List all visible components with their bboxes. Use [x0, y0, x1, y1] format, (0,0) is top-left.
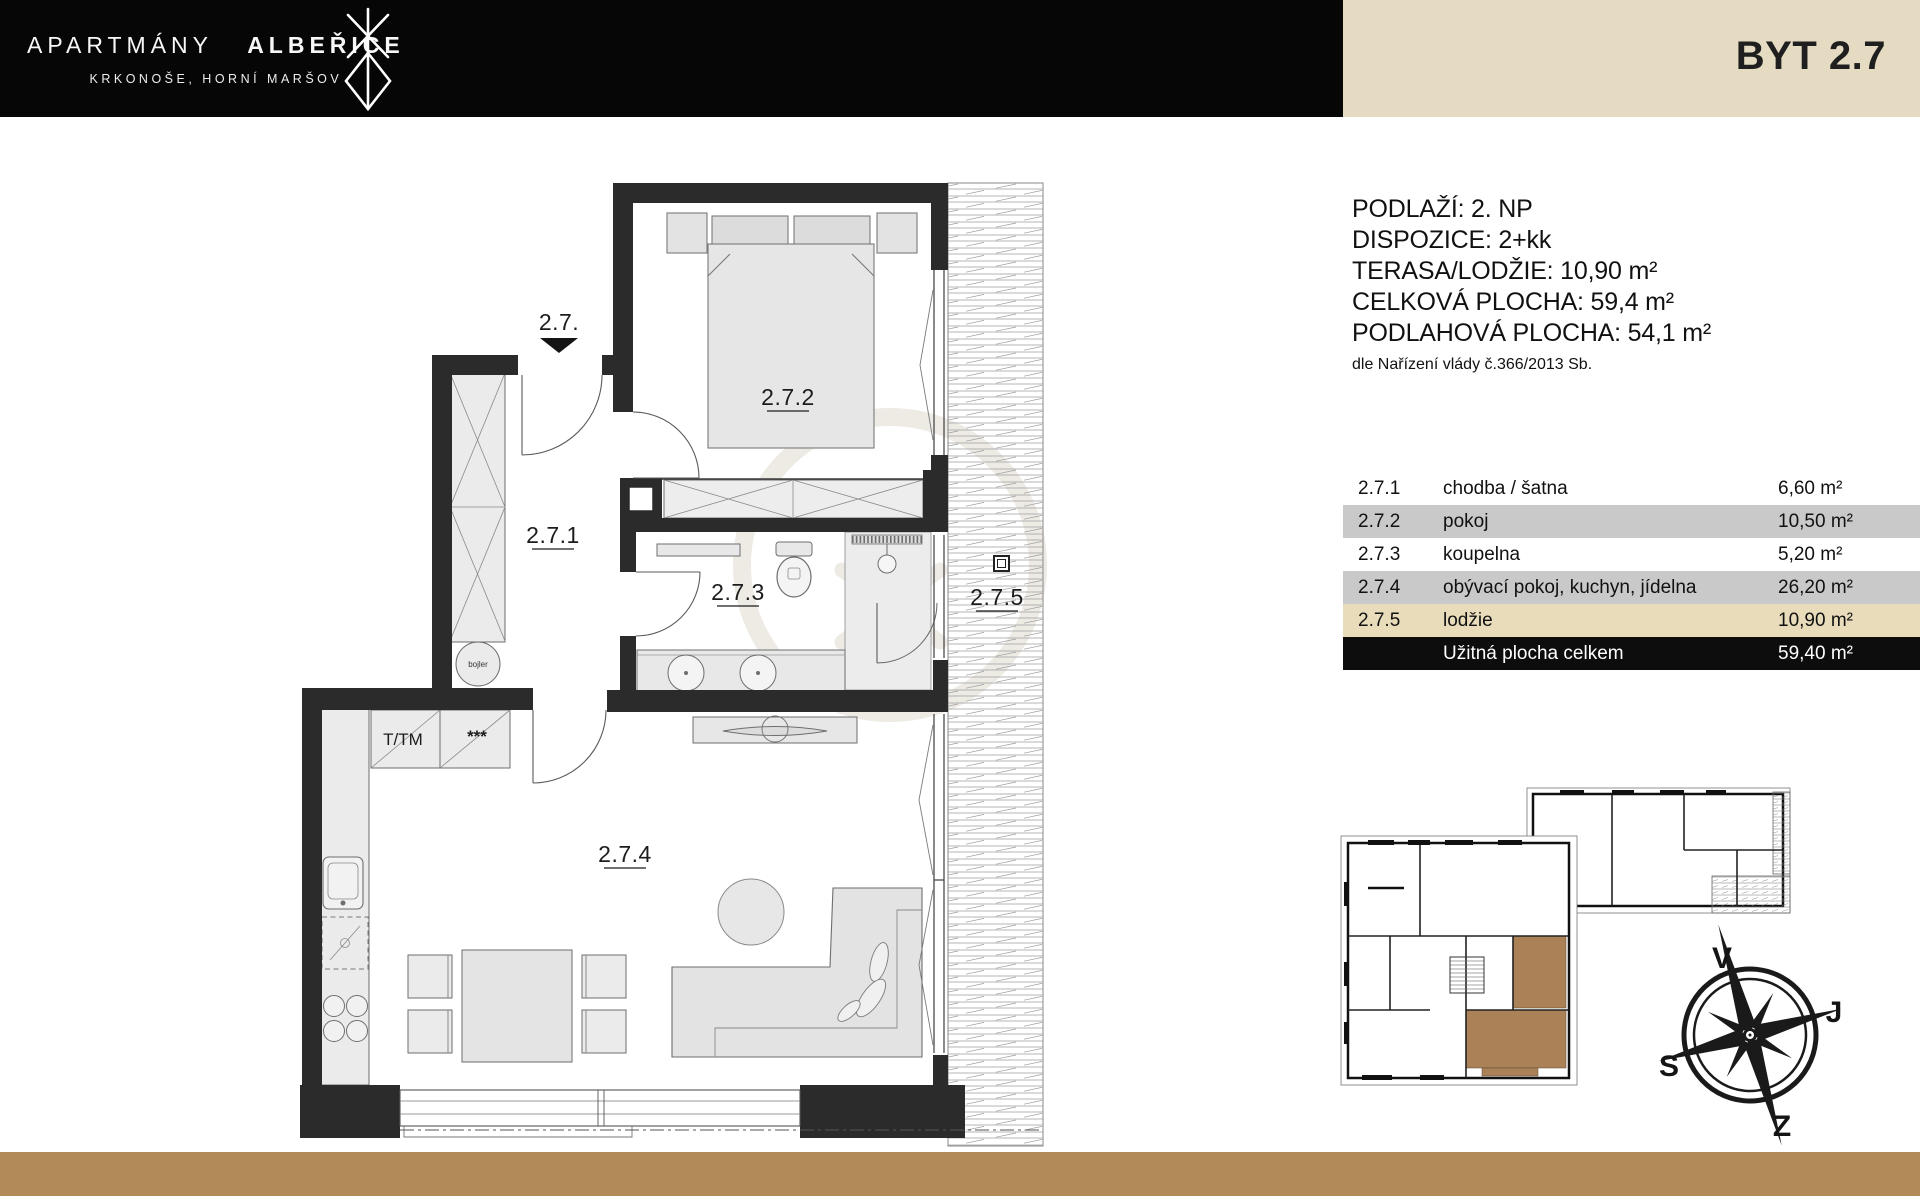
cabinet-label-ttm: T/TM	[383, 730, 423, 749]
footer-bar	[0, 1152, 1920, 1196]
boiler-label: bojler	[468, 660, 488, 669]
chair	[408, 1010, 452, 1053]
tv-sideboard	[693, 716, 857, 743]
room-label-bathroom: 2.7.3	[711, 579, 765, 605]
dining-table	[462, 950, 572, 1062]
double-bed	[708, 244, 874, 448]
chair	[582, 1010, 626, 1053]
nightstand	[877, 213, 917, 253]
boiler: bojler	[456, 642, 500, 686]
compass-left-label: S	[1659, 1050, 1679, 1083]
stairwell	[1450, 957, 1484, 993]
loggia-area	[948, 183, 1043, 1146]
chair	[582, 955, 626, 998]
compass-top-label: V	[1712, 942, 1732, 975]
compass-bottom-label: Z	[1773, 1110, 1791, 1143]
toilet	[776, 542, 812, 597]
hall-wardrobe	[450, 373, 505, 642]
bedroom-closet	[664, 480, 923, 518]
shaft	[629, 487, 653, 511]
compass-right-label: J	[1826, 996, 1843, 1029]
bathroom-fixtures	[637, 532, 937, 695]
room-label-loggia: 2.7.5	[970, 584, 1024, 610]
drain-icon	[994, 556, 1009, 571]
shower	[845, 532, 937, 690]
kitchen-sink	[323, 857, 363, 909]
entrance-label: 2.7.	[539, 309, 579, 335]
dining-set	[408, 950, 626, 1062]
cabinet-label-stars: ***	[467, 727, 487, 746]
round-rug	[718, 879, 784, 945]
double-sink	[637, 650, 845, 695]
corner-sofa	[672, 888, 922, 1057]
compass-rose-icon: V J S Z	[1627, 898, 1873, 1171]
door-swings	[522, 375, 700, 783]
page: APARTMÁNY ALBEŘICE KRKONOŠE, HORNÍ MARŠO…	[0, 0, 1920, 1196]
room-label-hall: 2.7.1	[526, 522, 580, 548]
nightstand	[667, 213, 707, 253]
chair	[408, 955, 452, 998]
room-label-living: 2.7.4	[598, 841, 652, 867]
room-label-bedroom: 2.7.2	[761, 384, 815, 410]
shelf	[657, 544, 740, 556]
floor-plan-drawing: bojler	[0, 0, 1920, 1196]
entrance-arrow-icon	[540, 338, 578, 353]
